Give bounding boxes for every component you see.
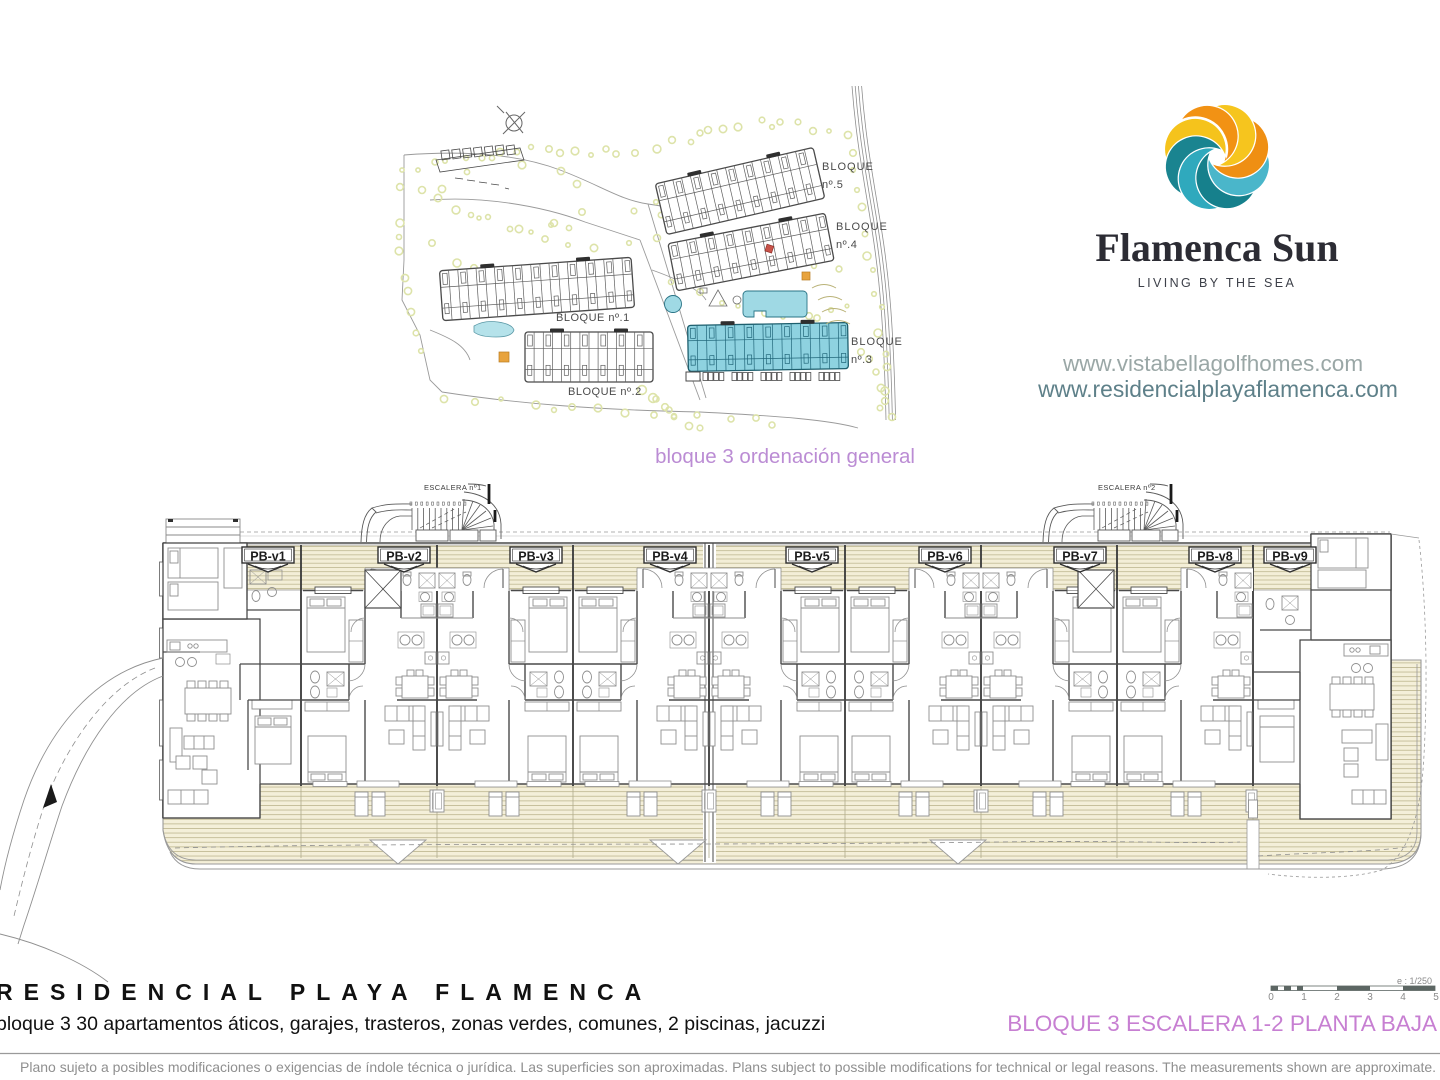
svg-text:LIVING BY THE SEA: LIVING BY THE SEA bbox=[1138, 276, 1296, 290]
svg-text:3: 3 bbox=[1367, 992, 1373, 1003]
svg-text:PB-v7: PB-v7 bbox=[1062, 550, 1097, 564]
svg-text:BLOQUE: BLOQUE bbox=[836, 221, 888, 233]
svg-text:Flamenca Sun: Flamenca Sun bbox=[1095, 225, 1338, 270]
svg-text:1: 1 bbox=[1301, 992, 1307, 1003]
svg-text:PB-v1: PB-v1 bbox=[250, 550, 285, 564]
svg-text:BLOQUE: BLOQUE bbox=[851, 336, 903, 348]
svg-text:bloque 3 30 apartamentos átic: bloque 3 30 apartamentos áticos, garajes… bbox=[0, 1013, 825, 1035]
svg-text:www.residencialplayaflamenca.c: www.residencialplayaflamenca.com bbox=[1037, 376, 1398, 402]
svg-text:RESIDENCIAL PLAYA FLAMENCA: RESIDENCIAL PLAYA FLAMENCA bbox=[0, 979, 652, 1005]
svg-text:e : 1/250: e : 1/250 bbox=[1397, 976, 1432, 986]
svg-text:PB-v3: PB-v3 bbox=[518, 550, 553, 564]
svg-text:ESCALERA nº2: ESCALERA nº2 bbox=[1098, 483, 1156, 492]
svg-text:BLOQUE nº.2: BLOQUE nº.2 bbox=[568, 386, 642, 398]
svg-text:Plano sujeto a posibles modifi: Plano sujeto a posibles modificaciones o… bbox=[20, 1059, 1436, 1075]
svg-text:nº.5: nº.5 bbox=[822, 179, 843, 191]
svg-text:PB-v8: PB-v8 bbox=[1197, 550, 1232, 564]
svg-text:0: 0 bbox=[1268, 992, 1274, 1003]
svg-text:5: 5 bbox=[1433, 992, 1439, 1003]
svg-text:BLOQUE 3 ESCALERA 1-2 PLANTA: BLOQUE 3 ESCALERA 1-2 PLANTA BAJA bbox=[1007, 1011, 1437, 1036]
svg-text:BLOQUE: BLOQUE bbox=[822, 161, 874, 173]
svg-text:4: 4 bbox=[1400, 992, 1406, 1003]
svg-text:bloque 3 ordenación general: bloque 3 ordenación general bbox=[655, 445, 915, 468]
svg-text:PB-v5: PB-v5 bbox=[794, 550, 829, 564]
svg-text:BLOQUE nº.1: BLOQUE nº.1 bbox=[556, 312, 630, 324]
svg-text:www.vistabellagolfhomes.com: www.vistabellagolfhomes.com bbox=[1062, 351, 1363, 376]
svg-text:ESCALERA nº1: ESCALERA nº1 bbox=[424, 483, 482, 492]
svg-text:PB-v4: PB-v4 bbox=[652, 550, 687, 564]
svg-text:nº.3: nº.3 bbox=[851, 354, 872, 366]
svg-text:2: 2 bbox=[1334, 992, 1340, 1003]
svg-text:PB-v2: PB-v2 bbox=[386, 550, 421, 564]
svg-text:nº.4: nº.4 bbox=[836, 239, 857, 251]
svg-text:PB-v6: PB-v6 bbox=[927, 550, 962, 564]
svg-text:PB-v9: PB-v9 bbox=[1272, 550, 1307, 564]
